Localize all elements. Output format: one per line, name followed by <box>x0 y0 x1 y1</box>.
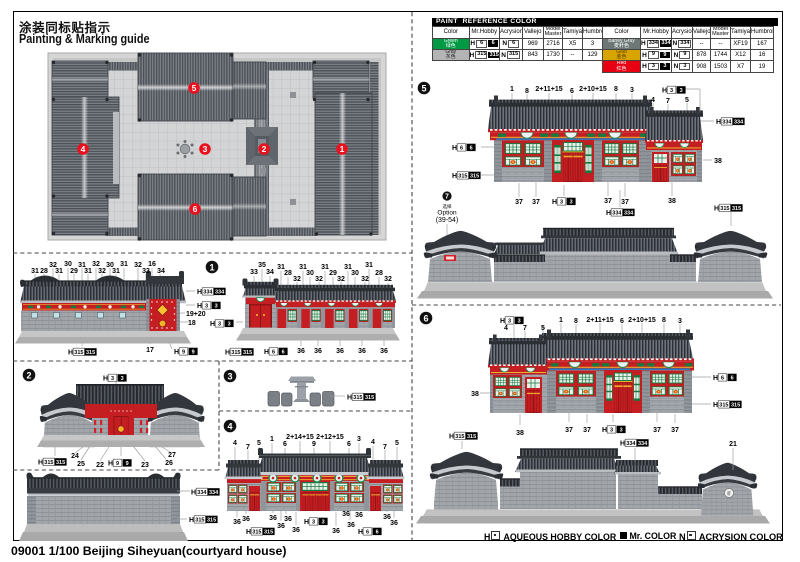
svg-text:32: 32 <box>361 276 369 283</box>
svg-text:1: 1 <box>559 317 563 324</box>
svg-text:36: 36 <box>355 512 363 519</box>
svg-text:38: 38 <box>471 391 479 398</box>
svg-text:3: 3 <box>630 87 634 94</box>
svg-text:36: 36 <box>380 348 388 355</box>
svg-text:6: 6 <box>423 313 428 323</box>
svg-text:34: 34 <box>157 268 165 275</box>
svg-text:36: 36 <box>314 348 322 355</box>
svg-text:36: 36 <box>336 348 344 355</box>
svg-text:6: 6 <box>283 441 287 448</box>
svg-text:6: 6 <box>347 441 351 448</box>
svg-text:36: 36 <box>242 516 250 523</box>
svg-text:36: 36 <box>269 515 277 522</box>
svg-text:2+11+15: 2+11+15 <box>535 86 562 93</box>
svg-text:37: 37 <box>532 199 540 206</box>
svg-text:4: 4 <box>81 144 86 154</box>
svg-text:6: 6 <box>570 88 574 95</box>
svg-text:27: 27 <box>168 452 176 459</box>
svg-text:37: 37 <box>621 199 629 206</box>
svg-text:4: 4 <box>504 325 508 332</box>
svg-text:5: 5 <box>421 83 426 93</box>
svg-text:6: 6 <box>193 204 198 214</box>
svg-text:36: 36 <box>347 522 355 529</box>
svg-text:7: 7 <box>383 444 387 451</box>
svg-text:36: 36 <box>358 348 366 355</box>
svg-text:2: 2 <box>262 144 267 154</box>
svg-text:37: 37 <box>671 427 679 434</box>
svg-text:32: 32 <box>134 262 142 269</box>
svg-text:7: 7 <box>523 325 527 332</box>
svg-text:31: 31 <box>365 262 373 269</box>
svg-text:32: 32 <box>293 276 301 283</box>
svg-text:37: 37 <box>653 427 661 434</box>
svg-text:7: 7 <box>666 98 670 105</box>
svg-text:37: 37 <box>604 198 612 205</box>
svg-text:5: 5 <box>395 440 399 447</box>
svg-text:30: 30 <box>351 270 359 277</box>
svg-text:7: 7 <box>246 444 250 451</box>
svg-text:Option: Option <box>437 210 457 217</box>
svg-text:4: 4 <box>227 421 232 431</box>
svg-text:2+11+15: 2+11+15 <box>586 317 613 324</box>
svg-text:36: 36 <box>277 523 285 530</box>
svg-text:29: 29 <box>329 270 337 277</box>
svg-text:25: 25 <box>77 461 85 468</box>
svg-text:5: 5 <box>685 97 689 104</box>
svg-text:32: 32 <box>384 276 392 283</box>
svg-text:2: 2 <box>26 370 31 380</box>
svg-text:2+10+15: 2+10+15 <box>628 317 656 324</box>
svg-text:1: 1 <box>209 262 214 272</box>
svg-text:8: 8 <box>574 318 578 325</box>
svg-text:31: 31 <box>31 268 39 275</box>
svg-text:4: 4 <box>233 440 237 447</box>
svg-text:8: 8 <box>525 88 529 95</box>
svg-text:32: 32 <box>98 268 106 275</box>
svg-text:24: 24 <box>71 453 79 460</box>
svg-text:6: 6 <box>620 318 624 325</box>
svg-text:37: 37 <box>515 199 523 206</box>
svg-text:36: 36 <box>292 527 300 534</box>
svg-text:(39-54): (39-54) <box>436 217 459 224</box>
svg-text:8: 8 <box>614 86 618 93</box>
svg-text:34: 34 <box>266 269 274 276</box>
svg-text:22: 22 <box>96 462 104 469</box>
svg-text:33: 33 <box>142 268 150 275</box>
svg-text:31: 31 <box>84 268 92 275</box>
svg-text:36: 36 <box>342 511 350 518</box>
svg-text:36: 36 <box>390 520 398 527</box>
svg-text:23: 23 <box>141 462 149 469</box>
svg-text:18: 18 <box>188 320 196 327</box>
svg-text:35: 35 <box>258 262 266 269</box>
svg-text:16: 16 <box>148 261 156 268</box>
svg-text:28: 28 <box>40 268 48 275</box>
svg-text:28: 28 <box>375 270 383 277</box>
svg-text:26: 26 <box>165 460 173 467</box>
svg-text:38: 38 <box>668 198 676 205</box>
svg-text:4: 4 <box>371 439 375 446</box>
svg-text:32: 32 <box>315 276 323 283</box>
svg-text:3: 3 <box>357 436 361 443</box>
svg-text:2+10+15: 2+10+15 <box>579 86 607 93</box>
svg-text:29: 29 <box>70 268 78 275</box>
svg-text:36: 36 <box>284 516 292 523</box>
svg-text:32: 32 <box>92 261 100 268</box>
svg-text:36: 36 <box>233 519 241 526</box>
svg-text:1: 1 <box>340 144 345 154</box>
svg-text:2+14+15: 2+14+15 <box>286 434 314 441</box>
svg-text:38: 38 <box>714 158 722 165</box>
svg-text:1: 1 <box>270 436 274 443</box>
svg-text:37: 37 <box>583 427 591 434</box>
svg-text:36: 36 <box>332 528 340 535</box>
svg-text:7: 7 <box>445 194 449 201</box>
svg-text:8: 8 <box>662 317 666 324</box>
svg-text:3: 3 <box>203 144 208 154</box>
svg-text:21: 21 <box>729 441 737 448</box>
svg-text:37: 37 <box>565 427 573 434</box>
svg-text:36: 36 <box>297 348 305 355</box>
svg-text:33: 33 <box>250 269 258 276</box>
svg-text:28: 28 <box>284 270 292 277</box>
svg-text:3: 3 <box>227 371 232 381</box>
svg-text:9: 9 <box>312 441 316 448</box>
svg-text:30: 30 <box>64 261 72 268</box>
svg-text:5: 5 <box>541 325 545 332</box>
svg-text:32: 32 <box>337 276 345 283</box>
svg-text:2+12+15: 2+12+15 <box>316 434 344 441</box>
svg-text:19+20: 19+20 <box>186 311 206 318</box>
svg-text:17: 17 <box>146 347 154 354</box>
svg-text:31: 31 <box>55 268 63 275</box>
svg-text:31: 31 <box>120 261 128 268</box>
svg-text:3: 3 <box>678 318 682 325</box>
svg-text:1: 1 <box>510 86 514 93</box>
svg-text:31: 31 <box>321 264 329 271</box>
svg-text:38: 38 <box>516 430 524 437</box>
svg-text:5: 5 <box>257 440 261 447</box>
svg-text:4: 4 <box>651 97 655 104</box>
svg-text:30: 30 <box>306 270 314 277</box>
svg-text:31: 31 <box>112 268 120 275</box>
svg-text:5: 5 <box>192 83 197 93</box>
